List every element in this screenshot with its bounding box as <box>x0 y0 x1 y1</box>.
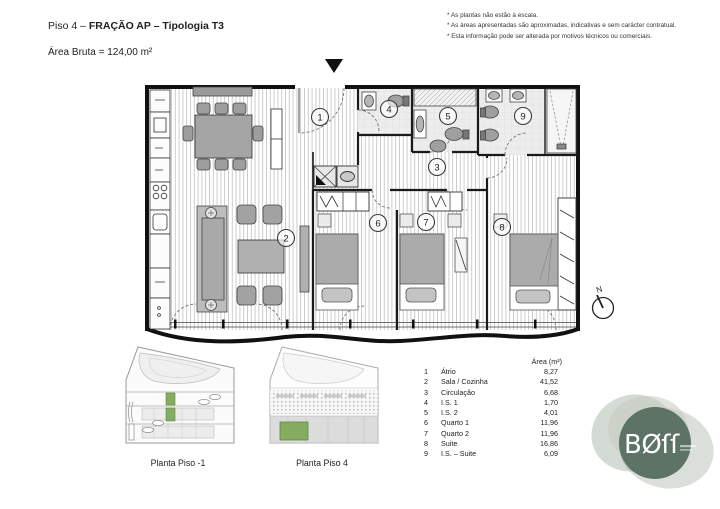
note-line: * As plantas não estão à escala. <box>447 11 676 21</box>
legend-room-area: 11,96 <box>518 429 564 439</box>
page-title: Piso 4 – FRAÇÃO AP – Tipologia T3 <box>48 20 224 32</box>
north-arrow-icon: N <box>593 284 614 318</box>
gross-area-subtitle: Área Bruta = 124,00 m² <box>48 47 152 58</box>
svg-text:N: N <box>595 284 603 294</box>
legend-room-name: Quarto 1 <box>441 418 518 428</box>
legend-room-name: I.S. – Suite <box>441 449 518 459</box>
room-number: 3 <box>434 162 439 173</box>
legend-room-number: 5 <box>424 408 441 418</box>
logo-text: BØſſ <box>624 430 680 460</box>
room-number: 9 <box>520 111 525 122</box>
highlight-unit <box>166 393 175 405</box>
legend-row: 4I.S. 11,70 <box>424 398 564 408</box>
legend-room-number: 7 <box>424 429 441 439</box>
legend-table: Área (m²) 1Átrio8,272Sala / Cozinha41,52… <box>424 356 564 459</box>
sideboard <box>193 87 252 96</box>
room-number: 1 <box>317 112 322 123</box>
mini-plan-label: Planta Piso 4 <box>260 458 384 468</box>
legend-room-area: 11,96 <box>518 418 564 428</box>
room-number: 4 <box>386 104 391 115</box>
mini-plan-piso-minus1 <box>116 344 240 456</box>
legend-row: 7Quarto 211,96 <box>424 429 564 439</box>
legend-room-name: Suite <box>441 439 518 449</box>
disclaimer-notes: * As plantas não estão à escala. * As ár… <box>447 11 676 42</box>
legend-room-area: 16,86 <box>518 439 564 449</box>
room-number: 6 <box>375 218 380 229</box>
floor-plan: 123456789 N <box>140 55 620 350</box>
legend-room-name: I.S. 1 <box>441 398 518 408</box>
legend-room-area: 4,01 <box>518 408 564 418</box>
kitchen-cabinets <box>150 90 170 329</box>
legend-room-name: I.S. 2 <box>441 408 518 418</box>
legend-row: 2Sala / Cozinha41,52 <box>424 377 564 387</box>
legend-row: 5I.S. 24,01 <box>424 408 564 418</box>
legend-room-number: 2 <box>424 377 441 387</box>
legend-room-name: Circulação <box>441 388 518 398</box>
legend-room-number: 8 <box>424 439 441 449</box>
legend-rows: 1Átrio8,272Sala / Cozinha41,523Circulaçã… <box>424 367 564 459</box>
mini-plan-label: Planta Piso -1 <box>116 458 240 468</box>
legend-row: 3Circulação6,68 <box>424 388 564 398</box>
entrance-arrow-icon <box>325 59 343 73</box>
legend-room-number: 9 <box>424 449 441 459</box>
legend-room-name: Sala / Cozinha <box>441 377 518 387</box>
legend-room-area: 6,68 <box>518 388 564 398</box>
legend-room-name: Quarto 2 <box>441 429 518 439</box>
legend-room-number: 3 <box>424 388 441 398</box>
legend-room-area: 8,27 <box>518 367 564 377</box>
legend-room-area: 41,52 <box>518 377 564 387</box>
legend-room-number: 6 <box>424 418 441 428</box>
room-number: 8 <box>499 222 504 233</box>
laundry-appliances <box>314 166 358 187</box>
mini-plan-piso4 <box>260 344 384 456</box>
boss-logo: BØſſ <box>588 393 716 495</box>
room-number: 7 <box>423 217 428 228</box>
legend-area-header: Área (m²) <box>424 356 564 367</box>
note-line: * As áreas apresentadas são aproximadas,… <box>447 21 676 31</box>
room-number: 5 <box>445 111 450 122</box>
note-line: * Esta informação pode ser alterada por … <box>447 32 676 42</box>
legend-room-name: Átrio <box>441 367 518 377</box>
legend-row: 6Quarto 111,96 <box>424 418 564 428</box>
legend-row: 9I.S. – Suite6,09 <box>424 449 564 459</box>
legend-room-number: 1 <box>424 367 441 377</box>
room-number: 2 <box>283 233 288 244</box>
page: { "header": { "title_regular": "Piso 4 –… <box>0 0 720 509</box>
legend-row: 8Suite16,86 <box>424 439 564 449</box>
legend-room-area: 1,70 <box>518 398 564 408</box>
highlight-unit <box>166 408 175 421</box>
legend-row: 1Átrio8,27 <box>424 367 564 377</box>
legend-room-number: 4 <box>424 398 441 408</box>
tv-board <box>300 226 309 292</box>
highlight-unit <box>280 422 308 440</box>
floor-plan-svg: 123456789 N <box>140 55 620 350</box>
legend-room-area: 6,09 <box>518 449 564 459</box>
